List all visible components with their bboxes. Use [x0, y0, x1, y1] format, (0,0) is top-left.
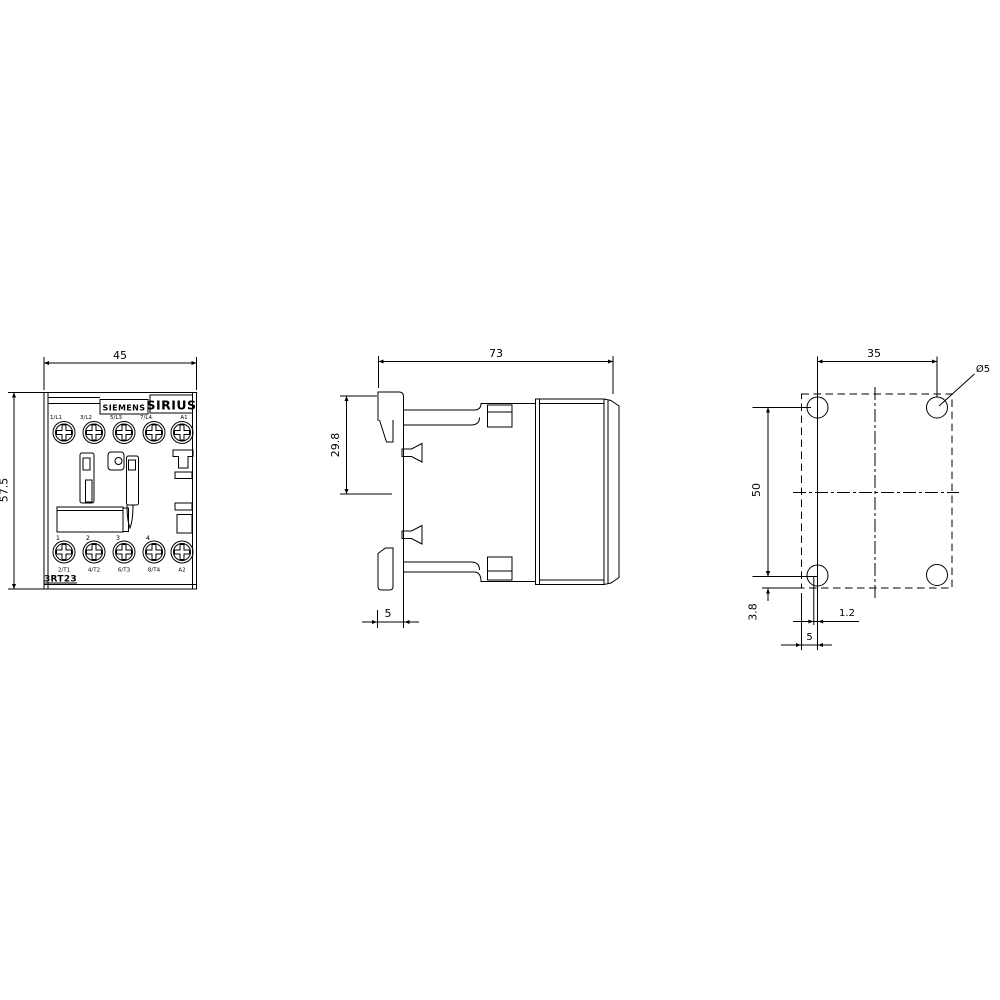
- front-terminal-labels-top: 1/L1 3/L2 5/L3 7/L4 A1: [50, 415, 188, 421]
- terminal-label: 7/L4: [140, 415, 152, 421]
- terminal-block-bottom: [488, 557, 513, 580]
- dim-label-edge-offset: 5: [806, 632, 812, 643]
- hole-spacing-v-dimension: 50: [750, 408, 818, 577]
- side-depth-dimension: 73: [379, 347, 614, 394]
- mounting-hole-bottom-right: [927, 565, 948, 586]
- terminal-screw: [53, 422, 75, 444]
- terminal-screw: [113, 422, 135, 444]
- dim-label-hole-spacing-v: 50: [750, 483, 763, 497]
- rail-clip-bottom: [378, 548, 393, 590]
- brand-label-plate: SIEMENS SIRIUS: [100, 395, 197, 414]
- series-label: SIRIUS: [146, 398, 196, 413]
- clamp-screw-bottom: [402, 526, 422, 545]
- model-label-group: 3RT23: [44, 575, 77, 585]
- pole-number: 1: [56, 534, 60, 542]
- dim-label-bottom-offset: 3.8: [747, 603, 760, 621]
- rail-hook-top: [380, 420, 394, 442]
- front-panel-details: [57, 450, 193, 533]
- terminal-label: 1/L1: [50, 415, 62, 421]
- terminal-label: 6/T3: [118, 568, 131, 574]
- terminal-block-top: [488, 405, 513, 427]
- dimensional-drawing: 45 57.5 SIEMENS SIRIUS 1/L1 3/L2 5/L3 7/…: [0, 0, 1000, 1000]
- coil-slot: [173, 450, 193, 468]
- terminal-screw: [83, 541, 105, 563]
- bottom-offset-dimension: 3.8: [747, 564, 803, 621]
- body-housing: [536, 399, 620, 585]
- side-clip-dimension: 5: [362, 607, 419, 628]
- terminal-screw: [143, 541, 165, 563]
- terminal-screw: [143, 422, 165, 444]
- dim-label-rail: 29.8: [329, 433, 342, 458]
- side-view: 73 29.8 5: [329, 347, 619, 628]
- terminal-label: 2/T1: [58, 568, 70, 574]
- front-view: 45 57.5 SIEMENS SIRIUS 1/L1 3/L2 5/L3 7/…: [0, 349, 197, 589]
- pole-number: 4: [146, 534, 150, 542]
- front-screws-top: [53, 422, 193, 444]
- terminal-screw: [113, 541, 135, 563]
- dim-label-hole-diameter: Ø5: [976, 363, 990, 375]
- mounting-hole-top-right: [927, 397, 948, 418]
- terminal-screw: [83, 422, 105, 444]
- slot-offset-dimension: 1.2: [793, 577, 859, 626]
- mounting-holes: [807, 397, 948, 586]
- hole-diameter-callout: Ø5: [939, 363, 990, 406]
- dim-label-clip: 5: [385, 607, 392, 620]
- hole-spacing-h-dimension: 35: [818, 347, 938, 362]
- front-pole-numbers: 1 2 3 4: [56, 534, 150, 542]
- dim-label-front-width: 45: [113, 349, 127, 362]
- front-height-dimension: 57.5: [0, 393, 44, 590]
- terminal-screw: [171, 422, 193, 444]
- terminal-label: A1: [180, 415, 187, 421]
- terminal-label: 3/L2: [80, 415, 92, 421]
- dim-label-slot-offset: 1.2: [839, 608, 855, 619]
- dim-label-depth: 73: [489, 347, 503, 360]
- side-rail-dimension: 29.8: [329, 396, 392, 494]
- drilling-view: 35 Ø5 50 3.8 1.2: [747, 347, 991, 650]
- terminal-label: 8/T4: [148, 568, 161, 574]
- front-screws-bottom: [53, 541, 193, 563]
- pole-number: 3: [116, 534, 120, 542]
- dim-label-hole-spacing-h: 35: [867, 347, 881, 360]
- terminal-screw: [171, 541, 193, 563]
- side-profile: [378, 392, 619, 628]
- terminal-screw: [53, 541, 75, 563]
- footprint-outline: [802, 394, 953, 588]
- front-terminal-labels-bottom: 2/T1 4/T2 6/T3 8/T4 A2: [58, 568, 186, 574]
- clamp-screw-top: [402, 444, 422, 463]
- terminal-label: A2: [178, 568, 185, 574]
- terminal-label: 5/L3: [110, 415, 122, 421]
- pole-number: 2: [86, 534, 90, 542]
- front-width-dimension: 45: [44, 349, 197, 390]
- terminal-label: 4/T2: [88, 568, 100, 574]
- dim-label-front-height: 57.5: [0, 478, 11, 503]
- brand-label: SIEMENS: [103, 404, 146, 413]
- technical-drawing-canvas: 45 57.5 SIEMENS SIRIUS 1/L1 3/L2 5/L3 7/…: [0, 0, 1000, 1000]
